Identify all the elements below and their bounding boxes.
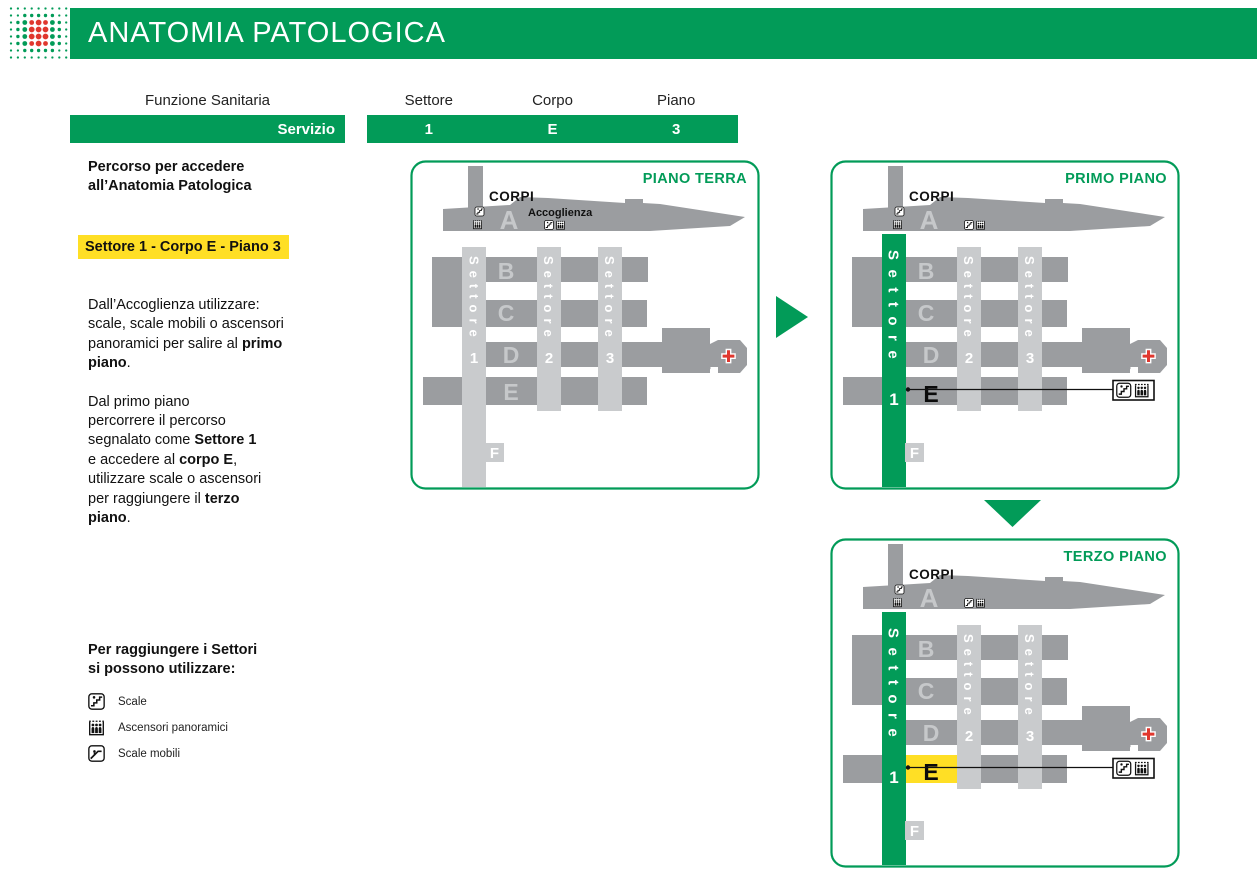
logo-dot — [24, 7, 26, 9]
corpo-f-label: F — [910, 445, 919, 462]
logo-dot — [22, 27, 27, 32]
logo-dot — [58, 28, 61, 31]
logo-dot — [51, 49, 54, 52]
route-description: Dall’Accoglienza utilizzare: scale, scal… — [88, 296, 328, 547]
logo-dot — [50, 34, 55, 39]
route-paragraph-bold: corpo E — [179, 452, 233, 468]
sector-2-number: 2 — [965, 350, 973, 367]
corpo-f-label: F — [490, 445, 499, 462]
sector-3-label: Settore — [1022, 634, 1037, 721]
legend-item: Scale mobili — [88, 745, 228, 762]
stairs-icon — [88, 693, 105, 710]
function-value-bar: Servizio — [70, 115, 345, 143]
corpo-e-label: E — [503, 379, 518, 405]
route-highlight-badge: Settore 1 - Corpo E - Piano 3 — [78, 235, 289, 259]
logo-dot — [31, 7, 33, 9]
logo-dot — [65, 42, 67, 44]
corpo-header: Corpo — [491, 92, 615, 109]
corpo-b-label: B — [498, 258, 515, 284]
corpo-value: E — [491, 121, 615, 138]
logo-dot — [17, 7, 19, 9]
logo-dot — [29, 27, 35, 33]
legend-title-line1: Per raggiungere i Settori — [88, 642, 257, 658]
e-callout-dot — [906, 387, 910, 391]
logo-dot — [10, 42, 12, 44]
legend-item: Scale — [88, 693, 228, 710]
logo-dot — [24, 56, 26, 58]
e-callout-dot — [906, 765, 910, 769]
route-intro: Percorso per accedereall’Anatomia Patolo… — [88, 158, 252, 196]
legend-title: Per raggiungere i Settorisi possono util… — [88, 641, 257, 679]
corpo-c-label: C — [498, 300, 515, 326]
header-bar: ANATOMIA PATOLOGICA — [70, 8, 1257, 59]
corpo-a-label: A — [920, 205, 939, 235]
corpo-a-label: A — [920, 583, 939, 613]
stairs-icon — [1117, 383, 1131, 397]
logo-dot — [51, 56, 53, 58]
logo-dot — [44, 56, 46, 58]
logo-dot — [36, 34, 42, 40]
logo-dot — [22, 34, 27, 39]
logo-dot — [10, 21, 12, 23]
stairs-icon — [965, 599, 974, 608]
logo-dot — [58, 21, 61, 24]
piano-value: 3 — [614, 121, 738, 138]
corpo-d-label: D — [503, 342, 520, 368]
logo-dot — [65, 7, 67, 9]
logo-dot — [31, 56, 33, 58]
floor-map-primo-piano: PRIMO PIANOSettore1Settore2Settore3ABCDE… — [830, 160, 1180, 490]
sector-2-label: Settore — [541, 256, 556, 343]
logo-dot — [58, 49, 60, 51]
corpi-label: CORPI — [489, 189, 534, 204]
function-value: Servizio — [277, 121, 335, 138]
logo-dot — [16, 21, 19, 24]
logo-dot — [23, 14, 26, 17]
panoramic-elevator-icon — [88, 719, 105, 736]
piano-header: Piano — [614, 92, 738, 109]
logo-dot — [36, 41, 42, 47]
logo-dot — [50, 20, 55, 25]
map-title: PIANO TERRA — [643, 171, 747, 187]
route-paragraph: Dal primo piano percorrere il percorso s… — [88, 393, 328, 529]
panoramic-elevator-icon — [976, 221, 985, 229]
route-paragraph-bold: Settore 1 — [194, 432, 256, 448]
corpi-stub — [888, 544, 903, 590]
logo-dot — [17, 56, 19, 58]
logo-dot — [50, 41, 55, 46]
logo-dot — [22, 20, 27, 25]
sector-1-number: 1 — [470, 350, 478, 367]
logo-dot — [50, 27, 55, 32]
logo-dot — [43, 27, 49, 33]
logo-dot — [37, 14, 40, 17]
sector-2-number: 2 — [965, 728, 973, 745]
corpo-f-label: F — [910, 823, 919, 840]
logo-dot — [65, 49, 67, 51]
logo-dot — [58, 56, 60, 58]
sector-2-label: Settore — [961, 256, 976, 343]
panoramic-elevator-icon — [556, 221, 565, 229]
logo-dot — [58, 14, 60, 16]
logo-dot — [58, 35, 61, 38]
logo-dot — [10, 56, 12, 58]
route-values-bar: 1 E 3 — [367, 115, 738, 143]
logo-dot — [43, 34, 49, 40]
route-intro-line2: all’Anatomia Patologica — [88, 178, 252, 194]
logo-dot — [43, 41, 48, 46]
sector-3-number: 3 — [1026, 350, 1034, 367]
stairs-icon — [545, 221, 554, 230]
d-extension-block — [1082, 328, 1130, 373]
panoramic-elevator-icon — [473, 221, 482, 229]
sector-3-number: 3 — [606, 350, 614, 367]
panoramic-elevator-icon — [976, 599, 985, 607]
logo-dot — [17, 14, 19, 16]
legend-item-label: Scale — [118, 696, 147, 708]
logo-dot — [29, 20, 34, 25]
logo-dot — [30, 49, 33, 52]
panoramic-elevator-icon — [1135, 385, 1149, 397]
floor-map-terzo-piano: TERZO PIANOSettore1Settore2Settore3ABCDE… — [830, 538, 1180, 868]
stairs-icon — [965, 221, 974, 230]
sector-1-number: 1 — [889, 390, 898, 409]
building-notch — [711, 367, 719, 374]
logo-dot — [10, 28, 12, 30]
page-title: ANATOMIA PATOLOGICA — [88, 17, 446, 50]
next-floor-arrow-down — [984, 500, 1041, 527]
corpo-d-label: D — [923, 342, 940, 368]
logo-dot — [65, 21, 67, 23]
corpo-a-label: A — [500, 205, 519, 235]
next-floor-arrow-right — [776, 296, 808, 338]
logo-dot — [37, 56, 39, 58]
legend-item: Ascensori panoramici — [88, 719, 228, 736]
d-extension-block — [662, 328, 710, 373]
map-title: TERZO PIANO — [1064, 549, 1168, 565]
logo-dot — [16, 28, 19, 31]
corpo-b-label: B — [918, 636, 935, 662]
stairs-icon — [1117, 761, 1131, 775]
logo-dot — [30, 14, 33, 17]
corpi-label: CORPI — [909, 189, 954, 204]
logo-dot — [36, 20, 42, 26]
logo-dot — [22, 41, 27, 46]
logo-dot — [44, 14, 47, 17]
route-headers: Settore Corpo Piano — [367, 90, 738, 110]
logo-dot — [37, 7, 39, 9]
panoramic-elevator-icon — [893, 599, 902, 607]
panoramic-elevator-icon — [893, 221, 902, 229]
sector-3-label: Settore — [602, 256, 617, 343]
stairs-icon — [475, 207, 484, 216]
legend-title-line2: si possono utilizzare: — [88, 661, 235, 677]
logo-dot — [16, 42, 19, 45]
dot-matrix-logo — [4, 2, 68, 64]
logo-dot — [58, 42, 61, 45]
map-title: PRIMO PIANO — [1065, 171, 1167, 187]
corpi-label: CORPI — [909, 567, 954, 582]
logo-dot — [16, 35, 19, 38]
sector-header: Settore — [367, 92, 491, 109]
logo-dot — [65, 56, 67, 58]
corpo-e-label: E — [923, 381, 938, 407]
sector-2-number: 2 — [545, 350, 553, 367]
corpi-stub — [888, 166, 903, 212]
legend-item-label: Scale mobili — [118, 748, 180, 760]
logo-dot — [65, 14, 67, 16]
legend-list: Scale Ascensori panoramici Scale mobili — [88, 693, 228, 771]
corpo-e-label: E — [923, 759, 938, 785]
stairs-icon — [895, 207, 904, 216]
floor-map-piano-terra: PIANO TERRASettore1Settore2Settore3ABCDE… — [410, 160, 760, 490]
route-paragraph-text: e accedere al — [88, 452, 179, 468]
sector-value: 1 — [367, 121, 491, 138]
corpo-c-label: C — [918, 678, 935, 704]
escalator-icon — [88, 745, 105, 762]
logo-dot — [51, 7, 53, 9]
logo-dot — [29, 41, 34, 46]
d-extension-block — [1082, 706, 1130, 751]
logo-dot — [23, 49, 26, 52]
logo-dot — [10, 35, 12, 37]
stairs-icon — [895, 585, 904, 594]
logo-dot — [10, 14, 12, 16]
corpo-c-label: C — [918, 300, 935, 326]
logo-dot — [44, 49, 47, 52]
logo-dot — [36, 27, 42, 33]
logo-dot — [58, 7, 60, 9]
panoramic-elevator-icon — [1135, 763, 1149, 775]
building-notch — [1131, 745, 1139, 752]
corpo-b-label: B — [918, 258, 935, 284]
route-paragraph-text: . — [127, 510, 131, 526]
building-notch — [1131, 367, 1139, 374]
function-header: Funzione Sanitaria — [70, 90, 345, 110]
sector-1-label: Settore — [885, 250, 902, 368]
logo-dot — [29, 34, 35, 40]
route-intro-line1: Percorso per accedere — [88, 159, 244, 175]
logo-dot — [65, 35, 67, 37]
sector-2-label: Settore — [961, 634, 976, 721]
wayfinding-sheet: ANATOMIA PATOLOGICA Funzione Sanitaria S… — [0, 0, 1257, 887]
logo-dot — [44, 7, 46, 9]
corpo-d-label: D — [923, 720, 940, 746]
accoglienza-label: Accoglienza — [528, 207, 593, 219]
sector-1-label: Settore — [885, 628, 902, 746]
corpi-stub — [468, 166, 483, 212]
logo-dot — [51, 14, 54, 17]
logo-dot — [43, 20, 48, 25]
logo-dot — [10, 49, 12, 51]
sector-3-number: 3 — [1026, 728, 1034, 745]
route-paragraph-text: . — [127, 355, 131, 371]
sector-3-label: Settore — [1022, 256, 1037, 343]
logo-dot — [37, 49, 40, 52]
logo-dot — [17, 49, 19, 51]
sector-1-number: 1 — [889, 768, 898, 787]
logo-dot — [65, 28, 67, 30]
route-paragraph: Dall’Accoglienza utilizzare: scale, scal… — [88, 296, 328, 374]
sector-1-label: Settore — [466, 256, 481, 343]
logo-dot — [10, 7, 12, 9]
legend-item-label: Ascensori panoramici — [118, 722, 228, 734]
